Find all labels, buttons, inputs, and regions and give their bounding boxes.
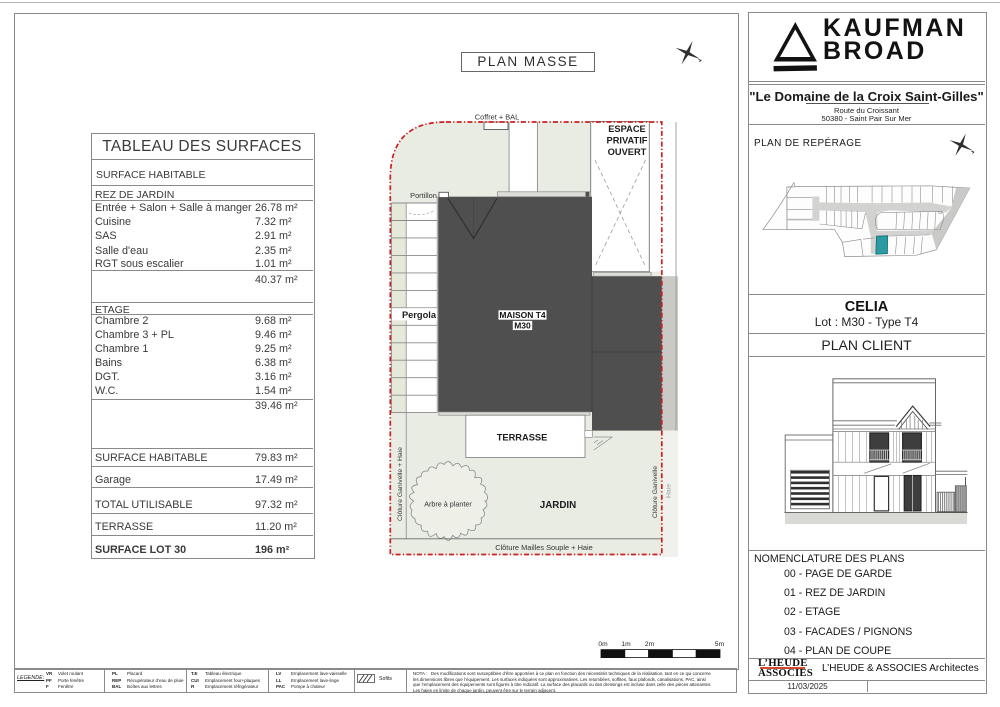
svg-text:MAISON T4: MAISON T4 <box>499 310 546 320</box>
svg-text:5m: 5m <box>715 641 725 648</box>
svg-text:2m: 2m <box>645 641 655 648</box>
svg-text:M30: M30 <box>514 321 531 331</box>
svg-text:ESPACE: ESPACE <box>608 124 646 134</box>
svg-text:PRIVATIF: PRIVATIF <box>607 136 648 146</box>
svg-text:Clôture Ganivelle + Haie: Clôture Ganivelle + Haie <box>397 447 404 521</box>
svg-text:Pergola: Pergola <box>402 310 437 320</box>
svg-text:1m: 1m <box>621 641 631 648</box>
svg-text:JARDIN: JARDIN <box>540 500 576 511</box>
svg-text:Haie: Haie <box>666 484 673 498</box>
svg-text:Clôture Mailles Souple + Haie: Clôture Mailles Souple + Haie <box>495 543 593 552</box>
svg-text:Coffret + BAL: Coffret + BAL <box>475 113 519 122</box>
svg-text:Portillon: Portillon <box>410 191 437 200</box>
svg-text:Arbre à planter: Arbre à planter <box>424 500 472 509</box>
svg-text:OUVERT: OUVERT <box>608 147 647 157</box>
svg-text:TERRASSE: TERRASSE <box>497 433 548 443</box>
svg-text:0m: 0m <box>598 641 608 648</box>
svg-text:Clôture Ganivelle: Clôture Ganivelle <box>652 466 659 518</box>
